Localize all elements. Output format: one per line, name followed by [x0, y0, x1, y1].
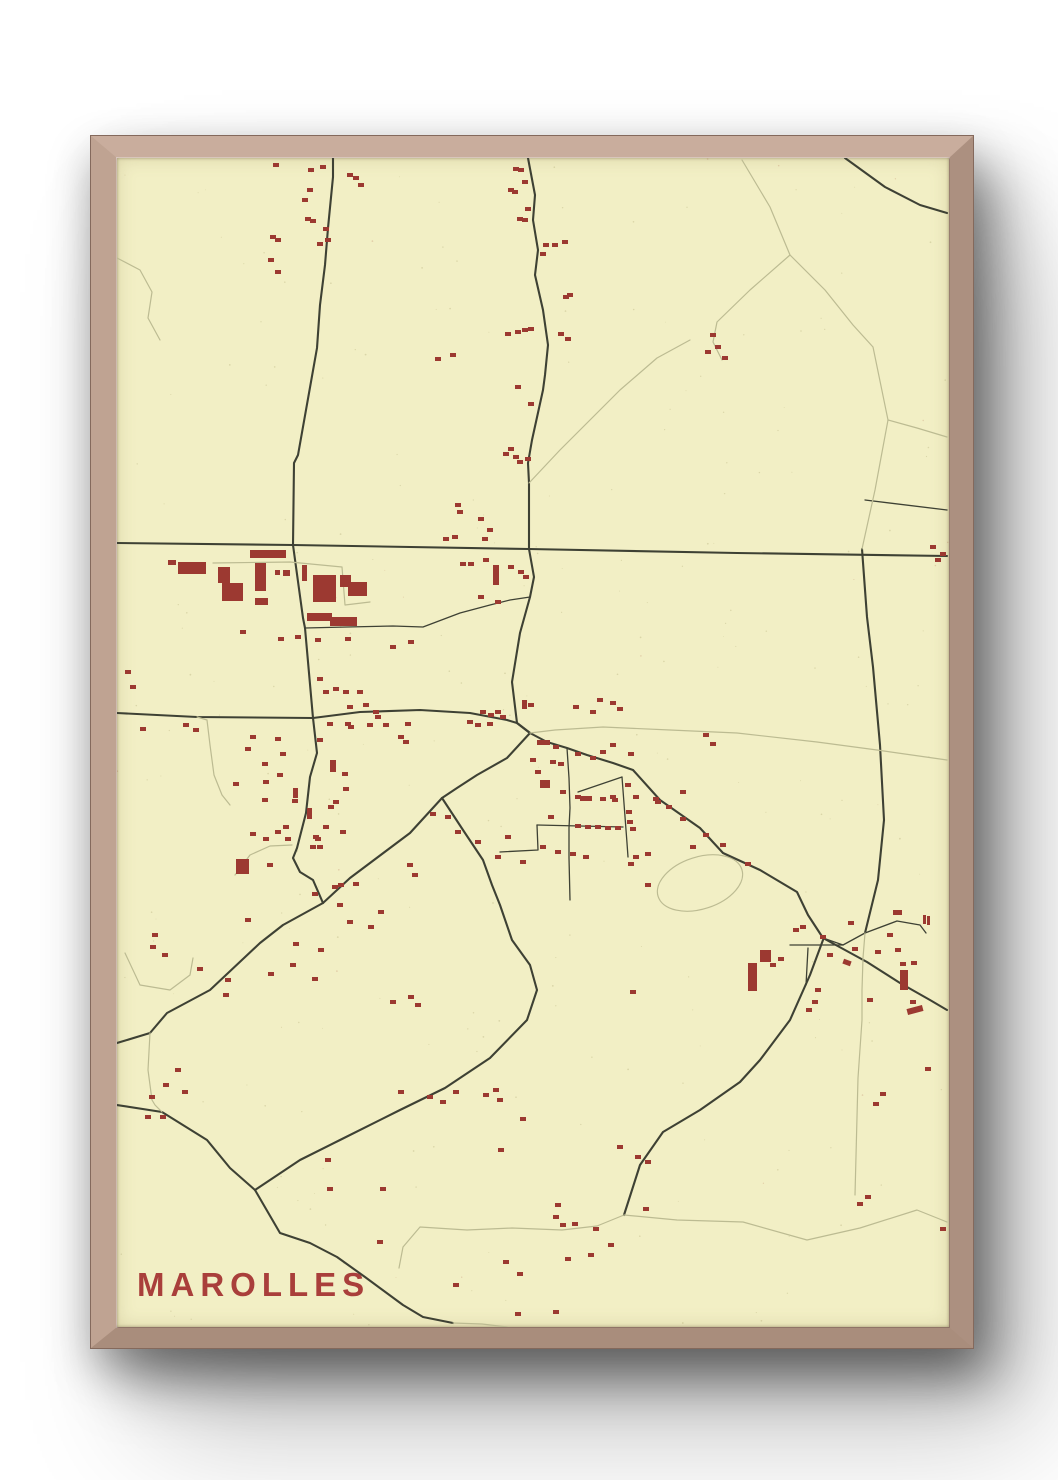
building: [548, 815, 554, 819]
building: [498, 1148, 504, 1152]
building: [610, 795, 616, 799]
building: [478, 517, 484, 521]
building: [347, 705, 353, 709]
building: [183, 723, 189, 727]
building: [373, 710, 379, 714]
building: [580, 796, 592, 801]
roads-layer: [117, 158, 947, 1327]
building: [848, 921, 854, 925]
building: [911, 961, 917, 965]
building: [588, 1253, 594, 1257]
building: [280, 752, 286, 756]
building: [525, 457, 531, 461]
building: [317, 738, 323, 742]
building: [268, 972, 274, 976]
building: [590, 756, 596, 760]
building: [617, 707, 623, 711]
building: [307, 613, 332, 621]
building: [505, 835, 511, 839]
building: [182, 1090, 188, 1094]
building: [528, 703, 534, 707]
building: [497, 1098, 503, 1102]
building: [403, 740, 409, 744]
building: [827, 953, 833, 957]
road-east-west-main: [117, 543, 947, 556]
building: [666, 805, 672, 809]
road-se-to-bottom-curve: [624, 940, 823, 1215]
building: [643, 1207, 649, 1211]
building: [323, 227, 329, 231]
building: [150, 945, 156, 949]
road-southwest-diagonal: [117, 733, 530, 1043]
building: [615, 826, 621, 830]
building: [645, 1160, 651, 1164]
building: [528, 402, 534, 406]
road-top-right-path-b: [713, 255, 790, 360]
road-north-road-east: [512, 158, 548, 733]
building: [325, 238, 331, 242]
building: [262, 798, 268, 802]
poster-photo-scene: MAROLLES: [0, 0, 1058, 1480]
building: [475, 840, 481, 844]
building: [312, 892, 318, 896]
building: [450, 353, 456, 357]
building: [520, 1117, 526, 1121]
road-top-right-road: [845, 158, 947, 213]
building: [488, 713, 494, 717]
building: [408, 995, 414, 999]
building: [820, 935, 826, 939]
road-village-east-path: [530, 727, 947, 760]
building: [793, 928, 799, 932]
building: [308, 168, 314, 172]
building: [927, 916, 930, 925]
building: [347, 920, 353, 924]
building: [475, 723, 481, 727]
building: [573, 705, 579, 709]
building: [375, 715, 381, 719]
building: [806, 1008, 812, 1012]
building: [575, 752, 581, 756]
building: [160, 1115, 166, 1119]
building: [710, 742, 716, 746]
building: [925, 1067, 931, 1071]
building: [435, 357, 441, 361]
building: [552, 243, 558, 247]
building: [910, 1000, 916, 1004]
building: [275, 238, 281, 242]
building: [267, 863, 273, 867]
building: [310, 845, 316, 849]
building: [380, 1187, 386, 1191]
building: [583, 855, 589, 859]
building: [483, 1093, 489, 1097]
building: [255, 598, 268, 605]
building: [852, 947, 858, 951]
building: [923, 915, 926, 924]
road-hamlet-ne-stub: [865, 921, 926, 933]
building: [468, 562, 474, 566]
building: [453, 1283, 459, 1287]
building: [515, 1312, 521, 1316]
building: [245, 747, 251, 751]
road-top-right-path-a: [742, 160, 888, 549]
building: [162, 953, 168, 957]
building: [593, 1227, 599, 1231]
building: [590, 710, 596, 714]
building: [518, 570, 524, 574]
road-south-winding-road: [255, 798, 537, 1190]
building: [608, 1243, 614, 1247]
building: [745, 862, 751, 866]
building: [340, 830, 346, 834]
building: [292, 799, 298, 803]
building: [635, 1155, 641, 1159]
building: [645, 883, 651, 887]
road-bottom-exit-path: [453, 1323, 507, 1327]
building: [610, 743, 616, 747]
building: [558, 332, 564, 336]
building: [800, 925, 806, 929]
building: [487, 528, 493, 532]
building: [390, 645, 396, 649]
building: [585, 825, 591, 829]
building: [457, 510, 463, 514]
building: [443, 537, 449, 541]
building: [565, 1257, 571, 1261]
building: [480, 710, 486, 714]
road-top-left-squiggle: [117, 258, 160, 340]
road-village-street-south: [567, 748, 570, 900]
building: [415, 1003, 421, 1007]
building: [358, 183, 364, 187]
building: [597, 698, 603, 702]
building: [149, 1095, 155, 1099]
building: [407, 863, 413, 867]
building: [353, 176, 359, 180]
building: [815, 988, 821, 992]
building: [715, 345, 721, 349]
building: [390, 1000, 396, 1004]
building: [540, 845, 546, 849]
building: [508, 447, 514, 451]
building: [353, 882, 359, 886]
building: [520, 860, 526, 864]
building: [455, 830, 461, 834]
building: [503, 452, 509, 456]
building: [705, 350, 711, 354]
building: [313, 835, 319, 839]
building: [250, 832, 256, 836]
road-bottom-path-west: [399, 1215, 624, 1268]
building: [495, 710, 501, 714]
building: [310, 219, 316, 223]
building: [515, 330, 521, 334]
building: [140, 727, 146, 731]
building: [895, 948, 901, 952]
building: [163, 1083, 169, 1087]
building: [537, 740, 550, 745]
building: [337, 903, 343, 907]
building: [865, 1195, 871, 1199]
building: [595, 825, 601, 829]
road-west-field-path: [197, 717, 230, 805]
road-hamlet-long-path: [855, 933, 865, 1195]
building: [722, 356, 728, 360]
building: [867, 998, 873, 1002]
road-hamlet-link: [823, 933, 865, 945]
building: [543, 243, 549, 247]
building: [653, 797, 659, 801]
building: [530, 758, 536, 762]
building: [720, 843, 726, 847]
building: [327, 1187, 333, 1191]
building: [278, 637, 284, 641]
building: [575, 824, 581, 828]
building: [633, 855, 639, 859]
building: [560, 790, 566, 794]
building: [263, 837, 269, 841]
building: [553, 1310, 559, 1314]
building: [312, 977, 318, 981]
building: [125, 670, 131, 674]
building: [842, 959, 851, 966]
building: [567, 293, 573, 297]
building: [377, 1240, 383, 1244]
building: [560, 1223, 566, 1227]
building: [250, 735, 256, 739]
building: [630, 827, 636, 831]
building: [503, 1260, 509, 1264]
building: [427, 1095, 433, 1099]
building: [522, 700, 527, 709]
buildings-layer: [125, 163, 946, 1316]
map-poster: MAROLLES: [117, 158, 949, 1327]
building: [285, 837, 291, 841]
building: [812, 1000, 818, 1004]
building: [513, 455, 519, 459]
building: [610, 701, 616, 705]
building: [398, 735, 404, 739]
building: [343, 787, 349, 791]
building: [255, 563, 266, 591]
building: [617, 1145, 623, 1149]
building: [283, 570, 290, 576]
building: [690, 845, 696, 849]
building: [906, 1005, 923, 1015]
road-southwest-vertical-path: [148, 1033, 162, 1112]
building: [345, 722, 351, 726]
building: [295, 635, 301, 639]
building: [940, 1227, 946, 1231]
building: [302, 565, 307, 581]
building: [495, 600, 501, 604]
town-map-graphic: [117, 158, 949, 1327]
building: [317, 242, 323, 246]
building: [328, 805, 334, 809]
building: [887, 933, 893, 937]
building: [478, 595, 484, 599]
building: [250, 550, 286, 558]
building: [460, 562, 466, 566]
road-oval-track: [650, 845, 750, 922]
building: [467, 720, 473, 724]
building: [263, 780, 269, 784]
building: [332, 885, 338, 889]
building: [275, 830, 281, 834]
building: [130, 685, 136, 689]
building: [600, 750, 606, 754]
building: [317, 677, 323, 681]
building: [900, 970, 908, 990]
building: [175, 1068, 181, 1072]
road-right-stub: [865, 500, 947, 510]
building: [873, 1102, 879, 1106]
building: [558, 762, 564, 766]
building: [748, 963, 757, 991]
building: [245, 918, 251, 922]
building: [515, 385, 521, 389]
building: [893, 910, 902, 915]
building: [605, 826, 611, 830]
building: [522, 218, 528, 222]
building: [302, 198, 308, 202]
building: [178, 562, 206, 574]
building: [236, 859, 249, 874]
building: [482, 537, 488, 541]
building: [275, 570, 280, 575]
building: [600, 797, 606, 801]
building: [522, 328, 528, 332]
building: [383, 723, 389, 727]
building: [630, 990, 636, 994]
building: [348, 582, 367, 596]
building: [440, 1100, 446, 1104]
road-bottom-path-east: [624, 1210, 947, 1240]
building: [342, 772, 348, 776]
building: [345, 637, 351, 641]
building: [553, 1215, 559, 1219]
building: [412, 873, 418, 877]
building: [483, 558, 489, 562]
building: [452, 535, 458, 539]
building: [645, 852, 651, 856]
building: [290, 963, 296, 967]
building: [378, 910, 384, 914]
building: [275, 737, 281, 741]
building: [343, 690, 349, 694]
building: [562, 240, 568, 244]
building: [703, 733, 709, 737]
building: [875, 950, 881, 954]
building: [430, 812, 436, 816]
building: [525, 207, 531, 211]
building: [293, 788, 298, 798]
paper-texture: [117, 158, 948, 1325]
building: [517, 460, 523, 464]
road-village-block-top: [578, 777, 622, 792]
building: [293, 942, 299, 946]
building: [550, 760, 556, 764]
building: [240, 630, 246, 634]
building: [778, 957, 784, 961]
building: [770, 963, 776, 967]
building: [222, 583, 243, 601]
building: [363, 703, 369, 707]
poster-title: MAROLLES: [137, 1266, 370, 1304]
building: [193, 728, 199, 732]
building: [528, 327, 534, 331]
road-north-road-west: [293, 158, 333, 903]
building: [262, 762, 268, 766]
building: [233, 782, 239, 786]
building: [518, 168, 524, 172]
building: [347, 173, 353, 177]
building: [500, 715, 506, 719]
building: [493, 1088, 499, 1092]
building: [145, 1115, 151, 1119]
building: [368, 925, 374, 929]
building: [225, 978, 231, 982]
building: [223, 993, 229, 997]
building: [505, 332, 511, 336]
building: [315, 638, 321, 642]
building: [453, 1090, 459, 1094]
building: [540, 780, 550, 788]
building: [628, 752, 634, 756]
building: [628, 862, 634, 866]
building: [357, 690, 363, 694]
building: [277, 773, 283, 777]
building: [555, 850, 561, 854]
building: [317, 845, 323, 849]
road-top-right-path-c: [888, 420, 947, 437]
building: [626, 810, 632, 814]
building: [327, 722, 333, 726]
building: [330, 617, 357, 626]
building: [512, 190, 518, 194]
building: [565, 337, 571, 341]
building: [570, 852, 576, 856]
building: [553, 745, 559, 749]
building: [152, 933, 158, 937]
building: [935, 558, 941, 562]
building: [680, 817, 686, 821]
building: [333, 687, 339, 691]
road-village-block-right: [622, 777, 628, 857]
building: [493, 565, 499, 585]
building: [572, 1222, 578, 1226]
building: [323, 690, 329, 694]
building: [930, 545, 936, 549]
building: [323, 825, 329, 829]
building: [857, 1202, 863, 1206]
building: [900, 962, 906, 966]
building: [218, 567, 230, 583]
road-east-vertical-road: [862, 549, 884, 933]
building: [625, 783, 631, 787]
building: [333, 800, 339, 804]
building: [273, 163, 279, 167]
building: [320, 165, 326, 169]
road-southwest-loop-path: [125, 953, 193, 990]
building: [495, 855, 501, 859]
building: [940, 552, 946, 556]
building: [283, 825, 289, 829]
building: [540, 252, 546, 256]
building: [487, 722, 493, 726]
building: [680, 790, 686, 794]
